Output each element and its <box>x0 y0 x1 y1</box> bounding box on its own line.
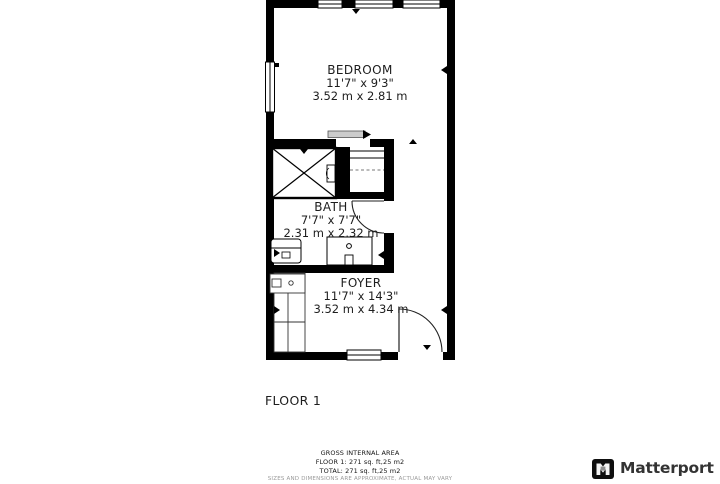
sliding-door <box>328 130 371 139</box>
gross-internal-area-title: GROSS INTERNAL AREA <box>0 449 720 458</box>
foyer-label: FOYER <box>341 276 382 290</box>
bedroom-label: BEDROOM <box>327 63 392 77</box>
bottom-window <box>347 350 381 360</box>
window <box>318 0 342 8</box>
shower-closet <box>272 148 336 198</box>
bath-label: BATH <box>314 200 347 214</box>
brand-logo: Matterport <box>592 458 714 479</box>
foyer-dim-metric: 3.52 m x 4.34 m <box>313 302 408 316</box>
foyer-dim-imperial: 11'7" x 14'3" <box>324 289 399 303</box>
closet-door <box>327 165 335 182</box>
bedroom-dim-imperial: 11'7" x 9'3" <box>326 76 394 90</box>
bath-dim-imperial: 7'7" x 7'7" <box>301 213 361 227</box>
window <box>403 0 440 8</box>
entry-door <box>398 309 443 360</box>
staircase <box>350 151 384 170</box>
foyer-sink <box>270 274 305 293</box>
slide-direction-arrow-icon <box>363 130 371 139</box>
floor-plan-drawing: BEDROOM 11'7" x 9'3" 3.52 m x 2.81 m BAT… <box>0 0 720 480</box>
brand-name: Matterport <box>620 458 714 479</box>
left-window <box>266 62 280 112</box>
bath-dim-metric: 2.31 m x 2.32 m <box>283 226 378 240</box>
bedroom-dim-metric: 3.52 m x 2.81 m <box>312 89 407 103</box>
window <box>355 0 393 8</box>
matterport-logo-icon <box>592 459 614 479</box>
sink <box>327 237 372 265</box>
floor-number-label: FLOOR 1 <box>265 393 321 408</box>
floorplan-page: BEDROOM 11'7" x 9'3" 3.52 m x 2.81 m BAT… <box>0 0 720 480</box>
top-windows <box>318 0 440 8</box>
